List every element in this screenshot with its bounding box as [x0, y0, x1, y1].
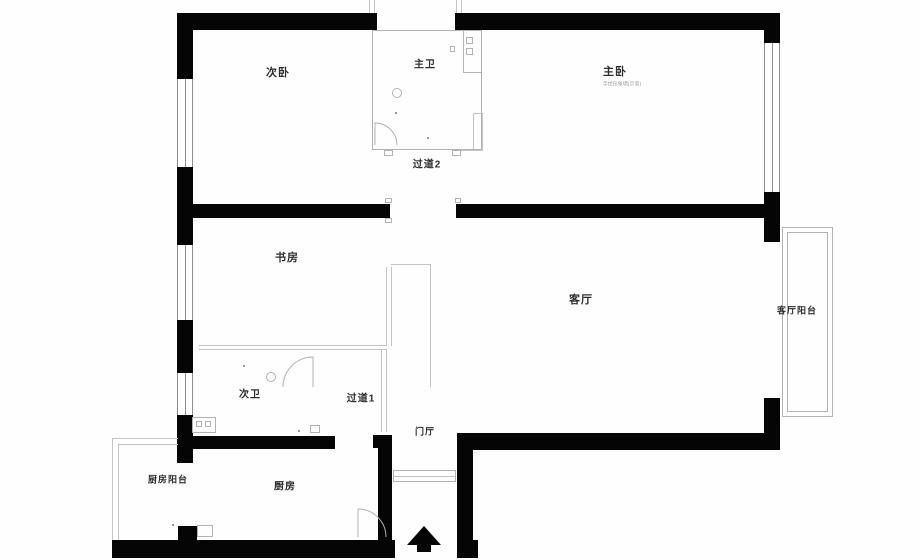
line-hall-top	[391, 264, 431, 265]
line-kb-left-outer	[112, 438, 113, 540]
box-basin-sq-1	[196, 421, 202, 427]
entry-arrow-stem	[417, 545, 431, 552]
box-pipe-shaft-sq-2	[466, 48, 473, 55]
wall-left-1	[177, 13, 193, 79]
line-study-right-a	[386, 267, 387, 346]
line-kb-top-inner	[118, 444, 178, 445]
dot-1	[427, 137, 429, 139]
room-label-master-bedroom: 主卧	[603, 63, 627, 79]
window-left-mid-line1	[185, 245, 186, 320]
room-label-kitchen: 厨房	[274, 478, 296, 493]
wall-lower-left	[178, 436, 335, 449]
line-shaft-right-a	[456, 0, 457, 13]
window-left-top-line2	[192, 79, 193, 167]
wall-left-3	[177, 320, 193, 373]
line-bath2-right-a	[381, 350, 382, 432]
room-label-living-room-balcony: 客厅阳台	[777, 304, 817, 317]
room-label-master-bedroom-note: 手绘形象墙(示意)	[603, 81, 641, 88]
room-label-secondary-bath: 次卫	[239, 386, 261, 401]
line-study-divider-a	[199, 345, 387, 346]
box-kitchen-sink	[197, 525, 213, 537]
wall-mid-left	[193, 204, 390, 218]
line-kb-left-inner	[118, 444, 119, 540]
drain-secondary-bath	[267, 373, 276, 382]
box-pipe-shaft-sq-1	[466, 37, 473, 44]
line-shaft-left-b	[374, 0, 375, 13]
wall-bottom-left	[112, 540, 395, 558]
window-right-main-line0	[764, 43, 765, 192]
window-left-low-line2	[192, 373, 193, 415]
wall-left-2	[177, 167, 193, 245]
dot-2	[395, 112, 397, 114]
box-basin-sq-2	[205, 421, 211, 427]
secondary-bath-door-arc	[283, 357, 313, 387]
wall-kitchen-stub	[178, 526, 197, 542]
floorplan-canvas: 次卧主卫主卧手绘形象墙(示意)过道2书房客厅客厅阳台次卫过道1门厅厨房阳台厨房	[0, 0, 920, 560]
line-bath2-right-b	[386, 350, 387, 432]
room-label-foyer: 门厅	[415, 425, 435, 438]
box-living-balcony-inner	[787, 232, 828, 412]
wall-right-1	[764, 13, 780, 43]
box-bath-tab-right	[452, 150, 461, 156]
line-shaft-right-b	[461, 0, 462, 13]
box-bath-tab-left	[384, 150, 393, 156]
entry-arrow-head	[407, 526, 441, 545]
wall-top-right	[455, 13, 780, 30]
dot-3	[243, 365, 245, 367]
room-label-kitchen-balcony: 厨房阳台	[148, 473, 188, 486]
wall-top-left	[177, 13, 377, 30]
window-left-top-line1	[185, 79, 186, 167]
box-jamb-mark-2	[385, 218, 392, 223]
box-mbr-wall-mark	[450, 46, 455, 52]
window-left-mid-line2	[192, 245, 193, 320]
line-study-right-b	[391, 267, 392, 346]
box-jamb-mark-3	[455, 198, 461, 203]
box-bath2-small-box	[310, 425, 320, 433]
line-shaft-left-a	[369, 0, 370, 13]
line-mbr-line-v	[482, 113, 483, 151]
wall-bottom-right	[457, 540, 478, 558]
wall-living-bottom	[457, 433, 780, 450]
line-study-divider-b	[199, 349, 387, 350]
dot-4	[298, 430, 300, 432]
box-jamb-mark-1	[385, 198, 392, 203]
window-left-low-line1	[185, 373, 186, 415]
box-entry-threshold	[393, 470, 456, 482]
dot-5	[172, 524, 174, 526]
room-label-corridor-2: 过道2	[413, 156, 442, 171]
room-label-corridor-1: 过道1	[347, 390, 376, 405]
window-right-main-line1	[772, 43, 773, 192]
line-hall-right	[430, 264, 431, 387]
room-label-master-bath: 主卫	[414, 56, 436, 71]
window-left-low-line0	[177, 373, 178, 415]
window-right-main-line2	[779, 43, 780, 192]
window-left-top-line0	[177, 79, 178, 167]
room-label-study: 书房	[275, 249, 299, 265]
room-label-secondary-bedroom: 次卧	[266, 64, 290, 80]
window-left-mid-line0	[177, 245, 178, 320]
wall-mid-right	[456, 204, 780, 218]
room-label-living-room: 客厅	[569, 291, 593, 307]
wall-kitchen-top	[373, 435, 392, 448]
line-kb-top-outer	[112, 438, 178, 439]
